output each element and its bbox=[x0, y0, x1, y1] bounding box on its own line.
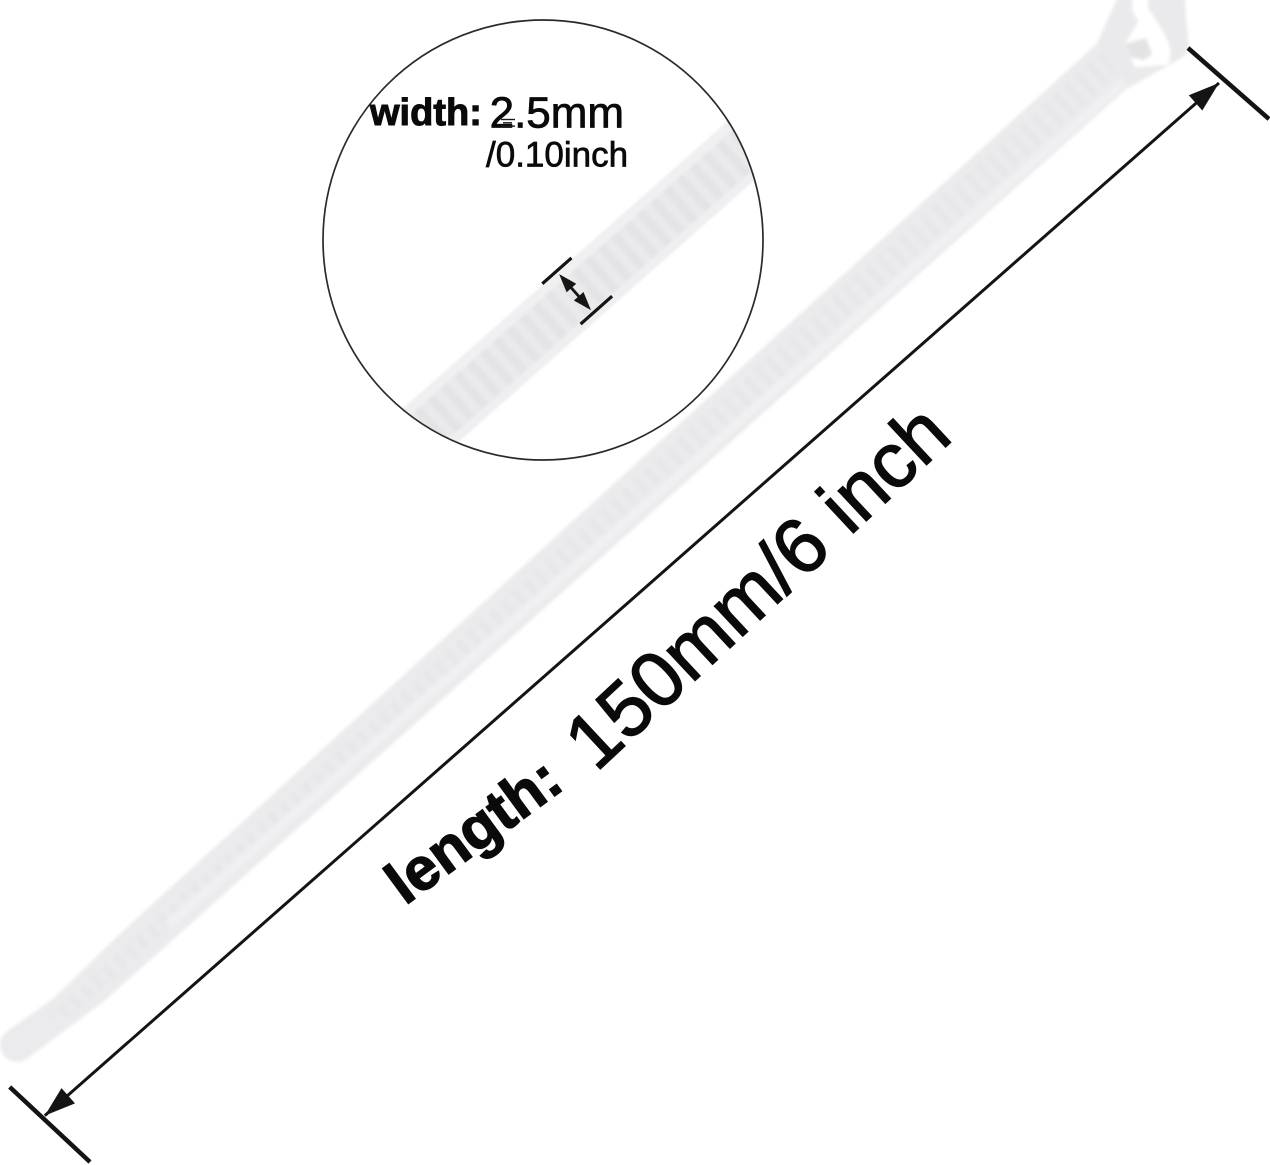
svg-text:2.5mm: 2.5mm bbox=[490, 89, 624, 138]
svg-text:width:: width: bbox=[369, 92, 482, 134]
svg-text:/0.10inch: /0.10inch bbox=[486, 136, 628, 175]
